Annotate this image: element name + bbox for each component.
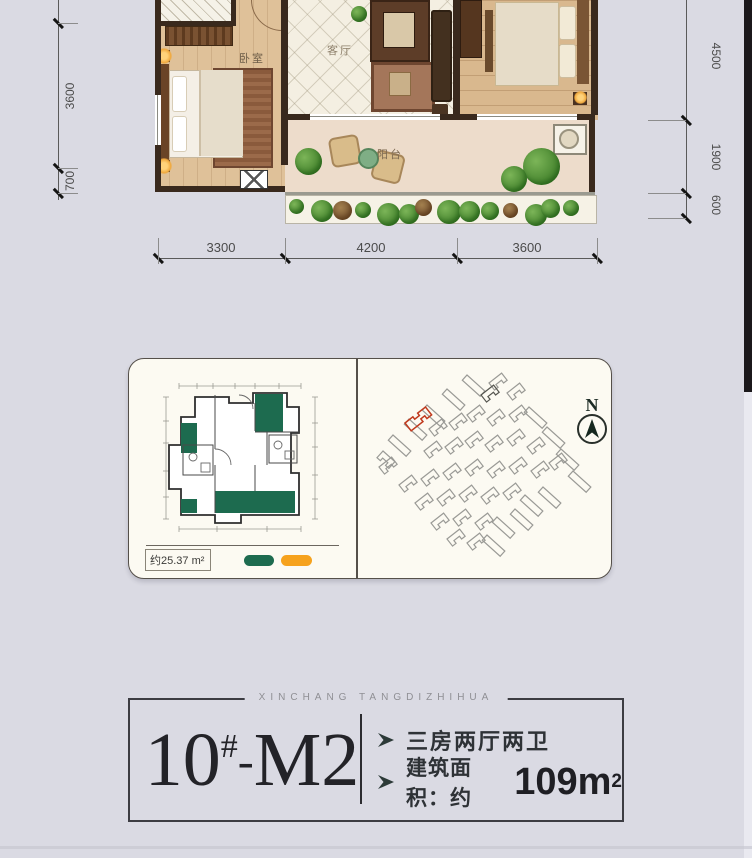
legend-orange-swatch xyxy=(281,555,312,566)
plant xyxy=(351,6,367,22)
feature-list: 三房两厅两卫 建筑面积：约109m2 xyxy=(376,720,622,804)
wall xyxy=(589,120,595,195)
balcony-chair xyxy=(328,134,363,169)
feature-area-value: 109m xyxy=(514,761,611,804)
dim-700-left: 700 xyxy=(63,163,77,199)
bed2-headboard xyxy=(577,0,589,84)
floor-plan: 卧室 客厅 阳台 xyxy=(155,0,598,222)
wall xyxy=(231,0,236,24)
wall xyxy=(453,0,460,115)
edge-strip-dark xyxy=(744,0,752,392)
shrub xyxy=(541,199,560,218)
wardrobe xyxy=(165,26,233,46)
coffee-table xyxy=(389,72,411,96)
washing-machine-door xyxy=(559,129,579,149)
area-label: 约25.37 m² xyxy=(145,549,211,571)
bed1-duvet xyxy=(199,70,243,156)
unit-model: M2 xyxy=(254,718,360,802)
twig-cluster xyxy=(415,199,432,216)
dresser xyxy=(460,0,482,58)
bed2-pillow xyxy=(559,44,576,78)
balcony-rail xyxy=(285,192,595,195)
bed1-pillow xyxy=(172,116,187,152)
legend-green-swatch xyxy=(244,555,274,566)
page: 卧室 客厅 阳台 3600 700 4500 1900 600 xyxy=(0,0,752,858)
unit-title: 10#-M2 xyxy=(142,708,362,812)
arrow-icon xyxy=(376,730,396,750)
info-divider xyxy=(360,714,362,804)
dim-3300-bottom: 3300 xyxy=(196,240,246,255)
unit-hash: # xyxy=(221,728,238,765)
shrub xyxy=(311,200,333,222)
tv-screen xyxy=(383,12,415,48)
feature-area-sup: 2 xyxy=(611,771,622,793)
dim-4500-right: 4500 xyxy=(709,36,723,76)
shrub xyxy=(377,203,400,226)
dim-600-right: 600 xyxy=(709,187,723,223)
label-living: 客厅 xyxy=(327,42,353,58)
wall xyxy=(281,0,288,165)
card-divider xyxy=(356,359,358,578)
feature-area-prefix: 建筑面积：约 xyxy=(406,752,514,812)
bottom-edge-line xyxy=(0,846,752,849)
detail-card: 约25.37 m² N xyxy=(128,358,612,579)
balcony-bush xyxy=(295,148,322,175)
window xyxy=(155,95,161,145)
compass-ring xyxy=(577,414,607,444)
window xyxy=(310,114,440,120)
edge-strip-light xyxy=(744,392,752,858)
balcony-table xyxy=(358,148,379,169)
twig-cluster xyxy=(333,201,352,220)
legend-divider xyxy=(146,545,339,546)
unit-separator: - xyxy=(238,735,254,788)
arrow-icon xyxy=(376,772,396,792)
flue-symbol xyxy=(240,170,268,189)
bed2-pillow xyxy=(559,6,576,40)
dim-4200-bottom: 4200 xyxy=(346,240,396,255)
shrub xyxy=(563,200,579,216)
sofa xyxy=(431,10,452,102)
bed2-bench xyxy=(485,10,493,72)
garden-strip xyxy=(285,195,597,224)
shrub xyxy=(481,202,499,220)
lamp-glow xyxy=(574,91,587,104)
wall xyxy=(591,0,598,115)
balcony-bush xyxy=(501,166,527,192)
wall xyxy=(155,145,161,192)
shrub xyxy=(289,199,304,214)
label-balcony: 阳台 xyxy=(377,146,403,162)
wall xyxy=(155,0,161,95)
bed1-pillow xyxy=(172,76,187,112)
compass-needle xyxy=(579,416,605,442)
info-header: XINCHANG TANGDIZHIHUA xyxy=(245,692,508,703)
dim-1900-right: 1900 xyxy=(709,137,723,177)
twig-cluster xyxy=(503,203,518,218)
wall xyxy=(160,21,236,26)
feature-area: 建筑面积：约109m2 xyxy=(376,762,622,802)
bed2-duvet xyxy=(495,2,559,86)
compass-n-label: N xyxy=(577,397,607,413)
window xyxy=(477,114,577,120)
unit-info-box: XINCHANG TANGDIZHIHUA 10#-M2 三房两厅两卫 建筑面积… xyxy=(128,698,624,822)
balcony-bush xyxy=(523,148,560,185)
label-bedroom: 卧室 xyxy=(239,50,265,66)
dim-3600-bottom: 3600 xyxy=(502,240,552,255)
compass: N xyxy=(577,397,607,444)
shrub xyxy=(437,200,461,224)
shrub xyxy=(459,201,480,222)
dim-3600-left: 3600 xyxy=(63,76,77,116)
site-plan-svg xyxy=(369,367,594,570)
shrub xyxy=(355,202,371,218)
mini-floorplan-svg xyxy=(157,379,325,537)
unit-number: 10 xyxy=(145,718,221,802)
